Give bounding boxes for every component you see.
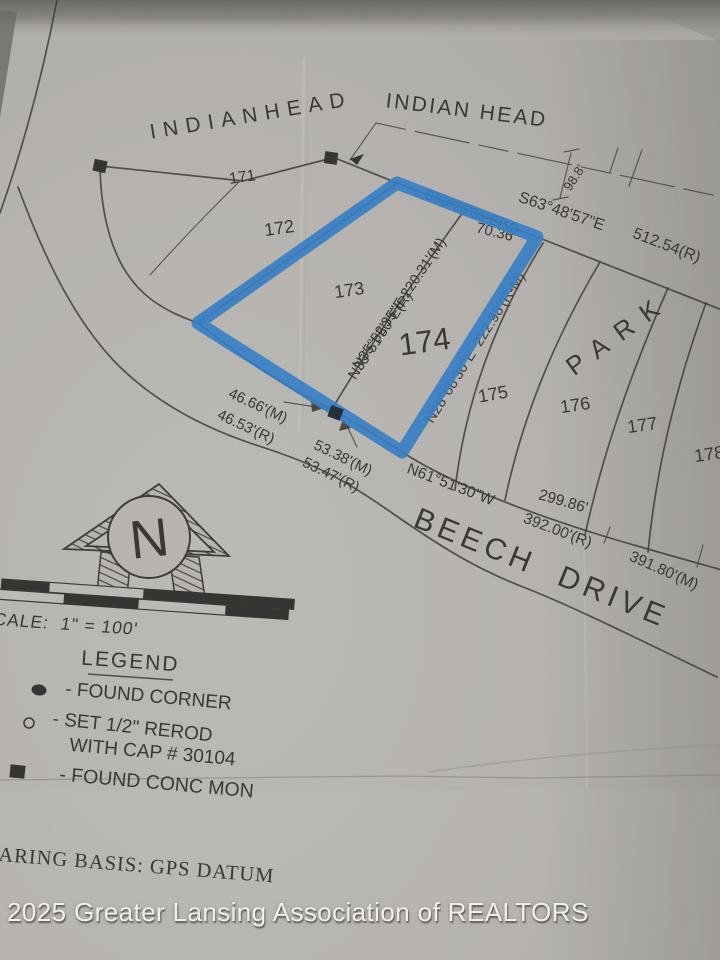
watermark-text: 2025 Greater Lansing Association of REAL… <box>7 897 647 928</box>
plat-photo: INDIANHEAD INDIAN HEAD 171 172 173 174 1… <box>0 0 720 960</box>
paper-grain-light <box>0 0 720 960</box>
plat-drawing: INDIANHEAD INDIAN HEAD 171 172 173 174 1… <box>0 0 720 960</box>
